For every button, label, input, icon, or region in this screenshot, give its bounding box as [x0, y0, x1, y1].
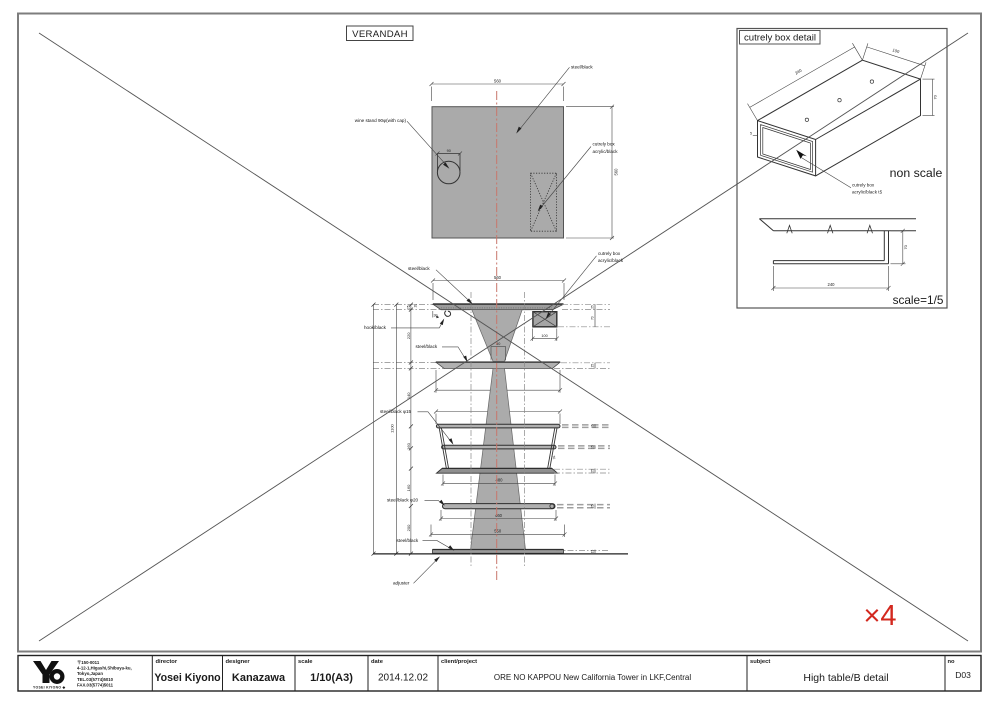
- svg-text:90: 90: [447, 149, 451, 153]
- svg-text:cutrely box: cutrely box: [598, 251, 621, 256]
- svg-text:cutrely box: cutrely box: [852, 183, 875, 188]
- svg-text:Tokyo,Japan: Tokyo,Japan: [77, 671, 103, 676]
- svg-text:D03: D03: [955, 670, 971, 680]
- svg-text:×4: ×4: [863, 600, 896, 632]
- svg-text:25: 25: [591, 305, 595, 309]
- svg-text:560: 560: [494, 275, 502, 280]
- svg-text:cutrely box: cutrely box: [593, 142, 616, 147]
- svg-text:100: 100: [541, 334, 547, 338]
- svg-text:date: date: [371, 659, 384, 665]
- svg-text:High table/B detail: High table/B detail: [803, 672, 888, 684]
- svg-text:4-12-1,Higashi,Shibuya-ku,: 4-12-1,Higashi,Shibuya-ku,: [77, 666, 132, 671]
- svg-text:director: director: [156, 659, 178, 665]
- svg-text:designer: designer: [226, 659, 251, 665]
- svg-text:200: 200: [406, 524, 411, 531]
- svg-text:〒150-0011: 〒150-0011: [77, 660, 100, 665]
- svg-text:FAX.03(5774)5011: FAX.03(5774)5011: [77, 682, 114, 687]
- svg-text:25: 25: [591, 504, 595, 508]
- svg-text:steel/black φ20: steel/black φ20: [387, 498, 419, 503]
- svg-text:hook/black: hook/black: [364, 325, 387, 330]
- svg-text:steel/black: steel/black: [408, 266, 430, 271]
- svg-text:scale: scale: [298, 659, 313, 665]
- svg-text:1100: 1100: [390, 423, 395, 432]
- svg-text:steel/black: steel/black: [416, 344, 438, 349]
- svg-text:5: 5: [750, 132, 752, 136]
- svg-text:160: 160: [406, 442, 411, 449]
- svg-text:adjuster: adjuster: [393, 581, 410, 586]
- svg-text:560: 560: [494, 78, 502, 83]
- svg-text:steel/black: steel/black: [397, 538, 419, 543]
- svg-text:20: 20: [414, 304, 418, 308]
- svg-text:15: 15: [591, 424, 595, 428]
- svg-text:220: 220: [406, 332, 411, 339]
- svg-text:steel/black: steel/black: [571, 64, 593, 69]
- svg-text:TEL.03(5774)5010: TEL.03(5774)5010: [77, 677, 114, 682]
- svg-text:no: no: [948, 659, 956, 665]
- svg-text:client/project: client/project: [441, 659, 477, 665]
- svg-text:25: 25: [591, 364, 595, 368]
- svg-text:Yosei Kiyono: Yosei Kiyono: [154, 672, 221, 684]
- svg-text:25: 25: [406, 305, 410, 309]
- svg-text:acrylic/black: acrylic/black: [593, 149, 619, 154]
- svg-text:2014.12.02: 2014.12.02: [378, 673, 428, 684]
- svg-text:1/10(A3): 1/10(A3): [310, 672, 353, 684]
- svg-text:550: 550: [494, 529, 502, 534]
- svg-text:70: 70: [903, 244, 908, 249]
- svg-text:steel/black φ15: steel/black φ15: [380, 409, 412, 414]
- svg-text:460: 460: [495, 513, 503, 518]
- svg-text:acrylic/black t5: acrylic/black t5: [852, 190, 883, 195]
- svg-text:15: 15: [591, 550, 595, 554]
- svg-text:240: 240: [828, 282, 836, 287]
- svg-text:non scale: non scale: [890, 166, 943, 180]
- svg-text:70: 70: [591, 316, 595, 320]
- svg-text:VERANDAH: VERANDAH: [352, 29, 408, 40]
- svg-text:15: 15: [591, 445, 595, 449]
- svg-text:wine stand 90φ(with cap): wine stand 90φ(with cap): [355, 118, 407, 123]
- svg-text:560: 560: [614, 168, 619, 176]
- svg-text:70: 70: [932, 94, 937, 99]
- svg-text:subject: subject: [750, 659, 770, 665]
- svg-text:25: 25: [591, 469, 595, 473]
- svg-text:Kanazawa: Kanazawa: [232, 672, 286, 684]
- svg-text:scale=1/5: scale=1/5: [893, 293, 944, 307]
- svg-text:ORE NO KAPPOU New California T: ORE NO KAPPOU New California Tower in LK…: [494, 673, 691, 682]
- svg-text:YOSEI KIYONO ◆: YOSEI KIYONO ◆: [33, 686, 66, 690]
- svg-text:70: 70: [551, 455, 556, 460]
- svg-text:160: 160: [406, 484, 411, 491]
- svg-text:cutrely box detail: cutrely box detail: [744, 33, 816, 44]
